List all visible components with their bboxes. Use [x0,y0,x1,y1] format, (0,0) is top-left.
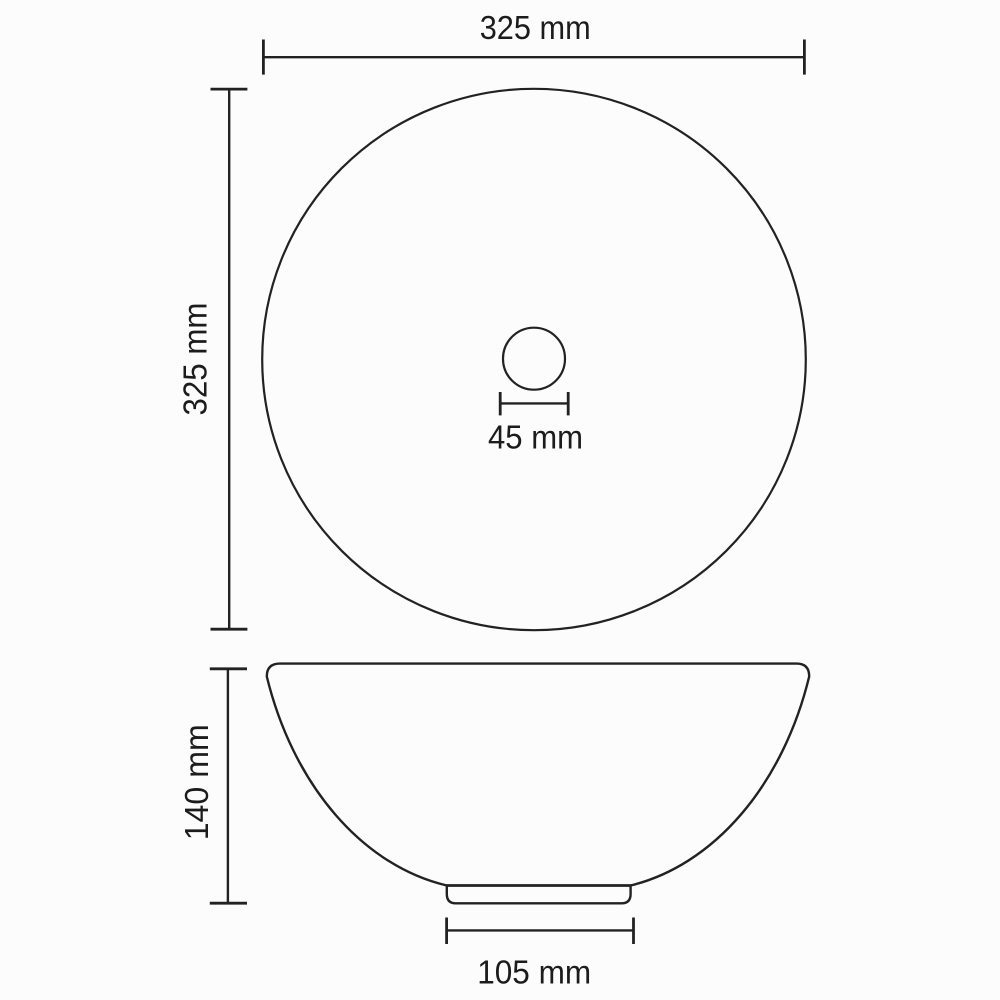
svg-text:45 mm: 45 mm [488,419,583,456]
svg-text:140 mm: 140 mm [178,724,215,840]
svg-text:105 mm: 105 mm [477,953,591,990]
svg-text:325 mm: 325 mm [177,303,214,416]
svg-text:325 mm: 325 mm [480,9,591,46]
